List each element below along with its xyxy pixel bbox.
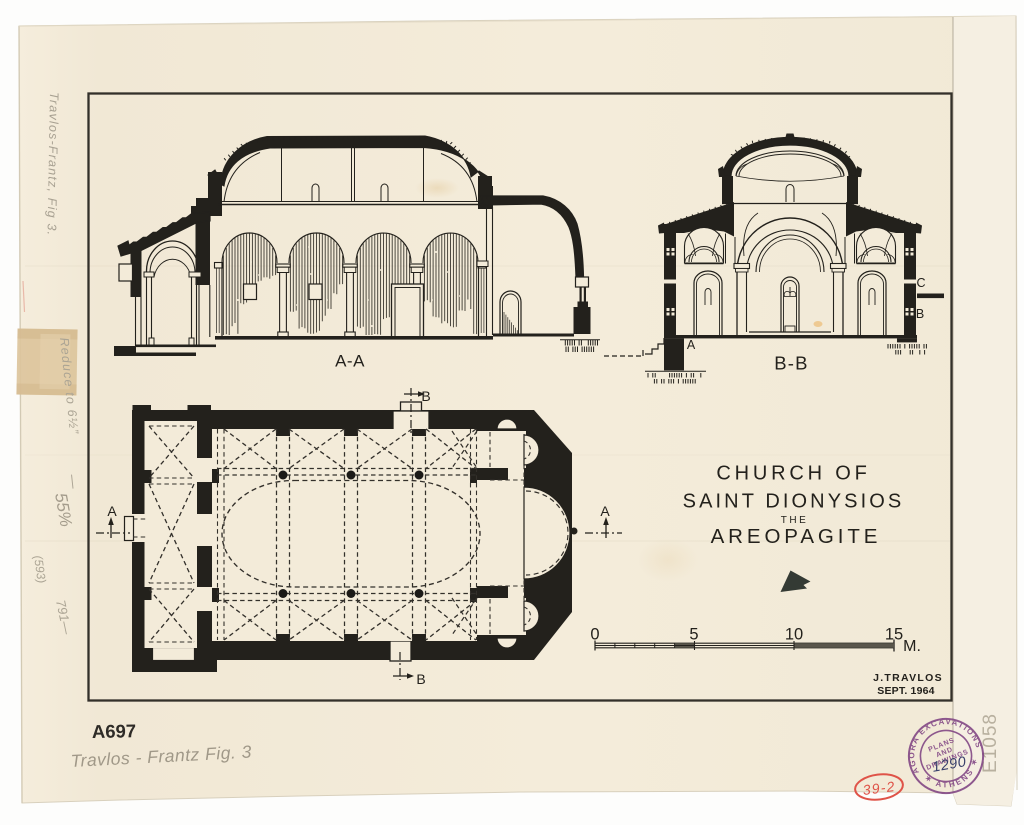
svg-text:A: A	[107, 503, 117, 519]
svg-text:10: 10	[785, 626, 803, 644]
svg-text:A: A	[600, 503, 610, 519]
svg-text:SAINT DIONYSIOS: SAINT DIONYSIOS	[683, 491, 905, 513]
svg-text:B: B	[916, 307, 924, 321]
svg-text:Travlos-Frantz, Fig 3.: Travlos-Frantz, Fig 3.	[44, 92, 61, 236]
svg-text:—: —	[65, 474, 82, 490]
svg-text:CHURCH OF: CHURCH OF	[716, 463, 870, 485]
svg-text:B: B	[416, 671, 425, 687]
svg-text:B: B	[421, 388, 430, 404]
svg-text:J.TRAVLOS: J.TRAVLOS	[873, 672, 943, 684]
svg-text:A: A	[687, 338, 696, 352]
svg-text:15: 15	[885, 626, 903, 644]
svg-text:C: C	[916, 276, 925, 290]
svg-text:A697: A697	[92, 720, 137, 742]
svg-text:SEPT. 1964: SEPT. 1964	[877, 685, 934, 697]
svg-text:A-A: A-A	[335, 352, 365, 371]
svg-text:M.: M.	[903, 638, 921, 655]
svg-text:AREOPAGITE: AREOPAGITE	[711, 525, 882, 548]
svg-text:0: 0	[590, 626, 599, 644]
svg-text:B-B: B-B	[774, 353, 808, 374]
svg-text:5: 5	[689, 626, 698, 644]
